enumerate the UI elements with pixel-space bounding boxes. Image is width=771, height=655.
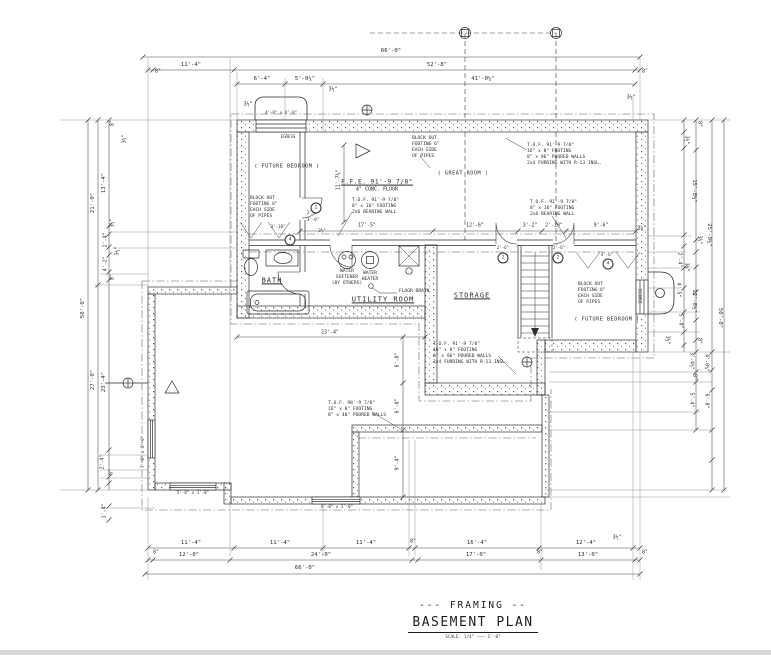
fixtures xyxy=(243,246,419,314)
door-future-bedroom-1 xyxy=(302,198,322,218)
door-stair-left xyxy=(496,223,517,244)
door-utility xyxy=(330,245,352,267)
stair-direction-arrow-icon xyxy=(531,328,539,337)
staircase xyxy=(518,246,552,353)
well-ladder-icon xyxy=(656,289,665,298)
beam-lines xyxy=(370,33,556,245)
revision-triangle-icon xyxy=(165,381,179,393)
floor-plan-drawing xyxy=(0,0,771,655)
sheet-title-prefix: --- FRAMING -- xyxy=(398,600,548,611)
egress-well-right xyxy=(648,272,674,314)
egress-well-top xyxy=(255,97,307,120)
interior-walls xyxy=(249,132,636,306)
scale-note: SCALE: 1/4" ——— 1'-0" xyxy=(398,635,548,640)
sheet-title: BASEMENT PLAN xyxy=(408,614,537,633)
water-softener-icon xyxy=(339,252,356,269)
title-block: --- FRAMING -- BASEMENT PLAN SCALE: 1/4"… xyxy=(398,600,548,640)
basement-framing-plan-sheet: 66'-0"11'-4"52'-8"8"8"6'-4"5'-0¼"41'-0¼"… xyxy=(0,0,771,655)
water-heater-icon xyxy=(362,252,379,269)
column-markers xyxy=(105,28,562,394)
sink-icon xyxy=(274,253,292,264)
page-edge xyxy=(0,650,771,655)
floor-drain-icon xyxy=(369,284,374,289)
revision-triangle-icon xyxy=(356,144,370,158)
foundation-walls xyxy=(148,120,648,504)
